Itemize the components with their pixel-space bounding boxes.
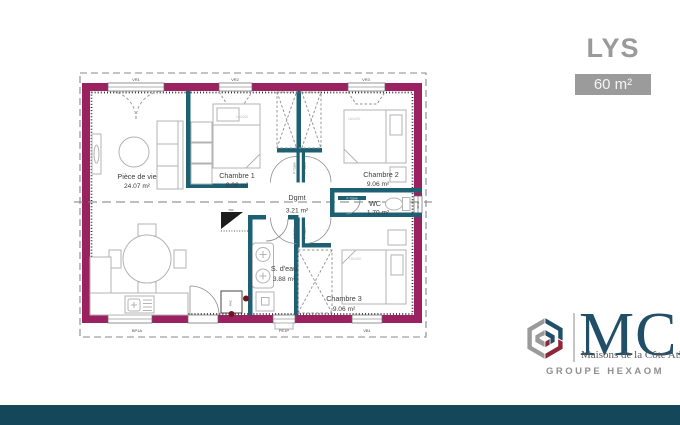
chair bbox=[174, 250, 186, 268]
room-label-bedroom3: Chambre 3 bbox=[326, 294, 362, 303]
svg-text:140x200: 140x200 bbox=[236, 115, 248, 119]
svg-text:3.88 m²: 3.88 m² bbox=[273, 276, 296, 283]
svg-text:1.70 m²: 1.70 m² bbox=[367, 210, 390, 217]
sofa bbox=[157, 121, 183, 189]
coffee-table bbox=[119, 137, 149, 167]
plan-title: LYS bbox=[553, 33, 673, 64]
electrical-panel-icon bbox=[221, 212, 243, 229]
group-label: GROUPE HEXAOM bbox=[546, 366, 664, 377]
pac-label: PAC bbox=[229, 299, 233, 306]
kitchen-counter bbox=[90, 257, 111, 295]
room-label-hallway: Dgmt bbox=[288, 193, 305, 202]
window-code-top-3: VR3 bbox=[362, 77, 371, 82]
tv-stand bbox=[92, 134, 101, 174]
mca-tagline: Maisons de la Côte Atlantique bbox=[581, 349, 680, 361]
bottom-accent-bar bbox=[0, 405, 680, 425]
dining-table bbox=[123, 235, 171, 283]
svg-text:3.21 m²: 3.21 m² bbox=[286, 208, 309, 215]
svg-text:9.06 m²: 9.06 m² bbox=[226, 182, 249, 189]
svg-text:24.07 m²: 24.07 m² bbox=[124, 183, 151, 190]
connection-point bbox=[243, 296, 249, 302]
mca-cube-icon bbox=[522, 312, 568, 365]
window-code-top-1: VR1 bbox=[132, 77, 141, 82]
shelf bbox=[191, 164, 212, 184]
room-label-living: Pièce de vie bbox=[117, 172, 156, 181]
svg-text:9.06 m²: 9.06 m² bbox=[333, 306, 356, 313]
toilet bbox=[386, 198, 403, 210]
svg-text:P T3204: P T3204 bbox=[303, 227, 307, 239]
svg-text:P T3204: P T3204 bbox=[293, 227, 297, 239]
svg-text:P T3204: P T3204 bbox=[303, 162, 307, 174]
wc-door-code: P 73204 bbox=[346, 196, 357, 200]
svg-text:140x200: 140x200 bbox=[349, 257, 361, 261]
svg-text:140x200: 140x200 bbox=[348, 117, 360, 121]
svg-text:P T3204: P T3204 bbox=[293, 162, 297, 174]
shelf bbox=[191, 122, 212, 142]
room-label-bedroom2: Chambre 2 bbox=[363, 170, 399, 179]
washing-machine bbox=[256, 292, 274, 311]
chair bbox=[138, 224, 156, 236]
tdf-label: TDF bbox=[228, 208, 234, 212]
equipment: TDF PAC bbox=[221, 208, 249, 317]
logo-divider bbox=[573, 313, 575, 362]
window-code-top-2: VR2 bbox=[231, 77, 240, 82]
bed-1 bbox=[213, 104, 260, 168]
room-label-bathroom: S. d'eau bbox=[271, 264, 297, 273]
room-label-wc: WC bbox=[369, 199, 381, 208]
room-label-bedroom1: Chambre 1 bbox=[219, 171, 255, 180]
window-code-bottom-3: VB1 bbox=[363, 328, 371, 333]
connection-point bbox=[229, 311, 235, 317]
nightstand bbox=[388, 230, 406, 245]
window-code-bottom-1: BP1A bbox=[132, 328, 143, 333]
shelf bbox=[191, 143, 212, 163]
svg-text:9.06 m²: 9.06 m² bbox=[367, 181, 390, 188]
area-badge: 60 m² bbox=[575, 74, 651, 95]
window-code-bottom-2: PE1P bbox=[279, 328, 290, 333]
chair bbox=[138, 282, 156, 294]
